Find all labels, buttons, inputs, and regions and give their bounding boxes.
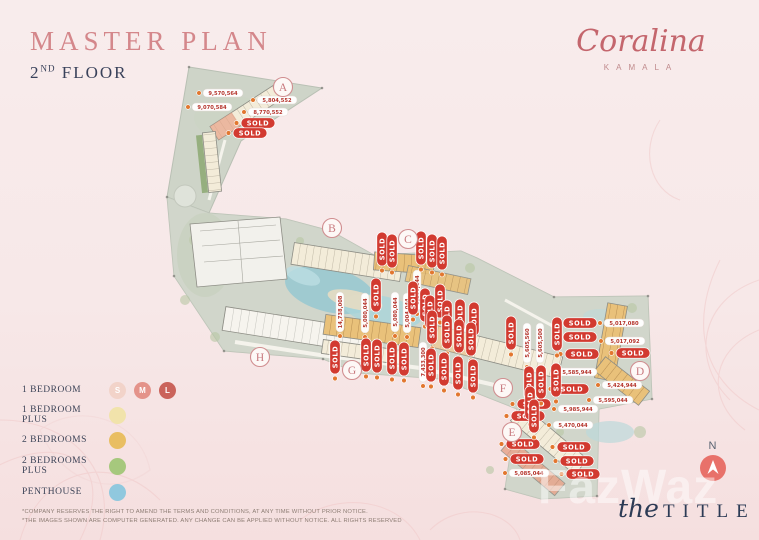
unit-number-dot [405, 335, 410, 340]
floor-subtitle: 2ND FLOOR [30, 63, 272, 83]
unit-number-dot [503, 457, 508, 462]
legend-swatches [109, 458, 126, 475]
unit-number-dot [598, 321, 603, 326]
unit-number-dot [596, 383, 601, 388]
unit-number-dot [440, 272, 445, 277]
unit-number-dot [554, 399, 559, 404]
legend-label: PENTHOUSE [22, 487, 108, 497]
sold-badge-text: SOLD [455, 325, 463, 347]
unit-number-dot [599, 339, 604, 344]
price-value: 5,605,500 [538, 328, 544, 358]
legend-row-penthouse: PENTHOUSE [22, 481, 108, 503]
sold-badge-text: SOLD [443, 321, 451, 343]
compass-north-label: N [699, 440, 727, 452]
section-marker-f: F [494, 379, 513, 398]
legend-swatch [109, 458, 126, 475]
page-title: MASTER PLAN [30, 26, 272, 57]
sold-badge-text: SOLD [569, 333, 591, 341]
unit-number-dot [411, 317, 416, 322]
section-marker-b: B [323, 219, 342, 238]
sold-badge-text: SOLD [362, 344, 370, 366]
legend-swatches [109, 432, 126, 449]
sold-badge-text: SOLD [507, 322, 515, 344]
price-value: 5,585,944 [562, 370, 592, 376]
sold-badge-text: SOLD [239, 129, 261, 137]
sold-badge-text: SOLD [563, 443, 585, 451]
sold-badge-text: SOLD [512, 440, 534, 448]
unit-number-dot [499, 442, 504, 447]
sold-badge-text: SOLD [469, 365, 477, 387]
unit-number-dot [510, 402, 515, 407]
price-value: 5,605,560 [525, 328, 531, 358]
price-value: 5,080,044 [393, 297, 399, 327]
sold-badge-text: SOLD [247, 119, 269, 127]
price-value: 5,017,080 [609, 321, 639, 327]
footer-brand-caps: TITLE [663, 501, 756, 522]
section-marker-g: G [343, 361, 362, 380]
sold-badge-text: SOLD [428, 240, 436, 262]
price-value: 5,595,044 [598, 398, 628, 404]
price-value: 9,570,564 [208, 91, 238, 97]
unit-number-dot [509, 352, 514, 357]
unit-number-dot [242, 110, 247, 115]
unit-number-dot [503, 471, 508, 476]
unit-number-dot [393, 334, 398, 339]
sold-badge: SOLD [468, 359, 478, 400]
section-letter: B [328, 223, 336, 235]
unit-number-dot [547, 423, 552, 428]
section-marker-d: D [631, 362, 650, 381]
sold-badge-text: SOLD [454, 362, 462, 384]
footer-brand-logo: theTITLE [618, 494, 756, 523]
legend-label: 1 BEDROOM PLUS [22, 405, 108, 425]
floor-number: 2 [30, 63, 41, 82]
unit-number-dot [559, 472, 564, 477]
sold-badge-text: SOLD [438, 242, 446, 264]
unit-number-dot [402, 378, 407, 383]
legend-swatches [109, 407, 126, 424]
legend-row-2-bedrooms-plus: 2 BEDROOMS PLUS [22, 455, 108, 477]
sold-badge-text: SOLD [373, 345, 381, 367]
sold-badge-text: SOLD [467, 328, 475, 350]
legend-swatch-s: S [109, 382, 126, 399]
sold-badge-text: SOLD [378, 238, 386, 260]
unit-number-dot [555, 353, 560, 358]
sold-badge-text: SOLD [566, 457, 588, 465]
unit-number-dot [375, 375, 380, 380]
unit-number-dot [442, 388, 447, 393]
sold-badge: SOLD [426, 348, 436, 389]
legend-swatches: SML [109, 382, 176, 399]
section-letter: F [500, 383, 506, 395]
section-letter: H [256, 352, 264, 364]
section-marker-a: A [274, 78, 293, 97]
brand-location: KAMALA [551, 63, 731, 72]
legend-swatch-m: M [134, 382, 151, 399]
sold-badge: SOLD [330, 340, 340, 381]
unit-number-dot [609, 351, 614, 356]
sold-badge-text: SOLD [409, 287, 417, 309]
price-value: 5,085,044 [514, 471, 544, 477]
unit-number-dot [186, 105, 191, 110]
unit-number-dot [550, 445, 555, 450]
sold-badge-text: SOLD [400, 348, 408, 370]
price-value: 5,017,092 [610, 339, 640, 345]
unit-number-dot [419, 267, 424, 272]
sold-badge-text: SOLD [561, 385, 583, 393]
unit-number-dot [553, 459, 558, 464]
legend-label: 2 BEDROOMS [22, 435, 108, 445]
sold-badge-text: SOLD [388, 347, 396, 369]
price-value: 14,738,008 [338, 295, 344, 328]
legend-label: 2 BEDROOMS PLUS [22, 456, 108, 476]
unit-number-dot [587, 398, 592, 403]
unit-number-dot [374, 314, 379, 319]
disclaimer-line-1: *COMPANY RESERVES THE RIGHT TO AMEND THE… [22, 508, 402, 517]
price-value: 8,770,552 [253, 110, 283, 116]
price-value: 5,470,044 [558, 423, 588, 429]
sold-badge-text: SOLD [440, 358, 448, 380]
disclaimer: *COMPANY RESERVES THE RIGHT TO AMEND THE… [22, 508, 402, 525]
footer-brand-script: the [618, 494, 659, 523]
sold-badge-text: SOLD [530, 405, 538, 427]
unit-number-dot [456, 392, 461, 397]
sold-badge: SOLD [453, 356, 463, 397]
legend-swatch [109, 484, 126, 501]
section-marker-h: H [251, 348, 270, 367]
sold-badge: SOLD [439, 352, 449, 393]
section-letter: C [404, 234, 412, 246]
section-letter: E [508, 427, 515, 439]
brand-name: Coralina [551, 24, 731, 59]
legend-label: 1 BEDROOM [22, 385, 108, 395]
price-value: 5,080,044 [363, 298, 369, 328]
unit-number-dot [197, 91, 202, 96]
building-parking-garage [190, 217, 287, 287]
section-marker-c: C [399, 230, 418, 249]
unit-number-dot [430, 270, 435, 275]
sold-badge-text: SOLD [417, 237, 425, 259]
sold-badge-text: SOLD [372, 284, 380, 306]
sold-badge-text: SOLD [331, 346, 339, 368]
floor-ordinal: ND [41, 63, 56, 73]
legend-swatch-l: L [159, 382, 176, 399]
section-letter: G [348, 365, 356, 377]
floor-word: FLOOR [62, 63, 128, 82]
legend-row-1-bedroom: 1 BEDROOMSML [22, 379, 108, 401]
sold-badge-text: SOLD [428, 316, 436, 338]
section-letter: A [279, 82, 288, 94]
unit-number-dot [390, 377, 395, 382]
unit-number-dot [429, 384, 434, 389]
unit-number-dot [380, 268, 385, 273]
master-plan-page: 9,570,5645,804,5529,070,5848,770,5525,01… [0, 0, 759, 540]
unit-number-dot [338, 334, 343, 339]
compass: N [699, 440, 727, 482]
section-marker-e: E [503, 423, 522, 442]
sold-badge-text: SOLD [572, 470, 594, 478]
legend-row-1-bedroom-plus: 1 BEDROOM PLUS [22, 404, 108, 426]
price-value: 5,985,944 [563, 407, 593, 413]
unit-number-dot [333, 376, 338, 381]
unit-number-dot [226, 131, 231, 136]
brand-logo: Coralina KAMALA [551, 24, 731, 72]
sold-badge-text: SOLD [622, 349, 644, 357]
unit-number-dot [421, 384, 426, 389]
legend-swatch [109, 432, 126, 449]
unit-number-dot [504, 414, 509, 419]
sold-badge-text: SOLD [516, 455, 538, 463]
legend-swatches [109, 484, 126, 501]
unit-number-dot [552, 407, 557, 412]
sold-badge-text: SOLD [571, 350, 593, 358]
sold-badge-text: SOLD [427, 354, 435, 376]
sold-badge-text: SOLD [552, 369, 560, 391]
title-block: MASTER PLAN 2ND FLOOR [30, 26, 272, 83]
sold-badge-text: SOLD [537, 371, 545, 393]
unit-number-dot [390, 270, 395, 275]
unit-number-dot [234, 121, 239, 126]
unit-number-dot [532, 435, 537, 440]
price-value: 5,804,552 [262, 98, 292, 104]
sold-badge-text: SOLD [388, 240, 396, 262]
sold-badge-text: SOLD [569, 319, 591, 327]
disclaimer-line-2: *THE IMAGES SHOWN ARE COMPUTER GENERATED… [22, 517, 402, 526]
unit-number-dot [364, 374, 369, 379]
price-value: 9,070,584 [197, 105, 227, 111]
price-value: 5,424,944 [607, 383, 637, 389]
section-letter: D [636, 366, 644, 378]
sold-badge-text: SOLD [553, 323, 561, 345]
unit-number-dot [251, 98, 256, 103]
legend-row-2-bedrooms: 2 BEDROOMS [22, 429, 108, 451]
legend-swatch [109, 407, 126, 424]
unit-number-dot [471, 395, 476, 400]
north-arrow-icon [699, 454, 727, 482]
